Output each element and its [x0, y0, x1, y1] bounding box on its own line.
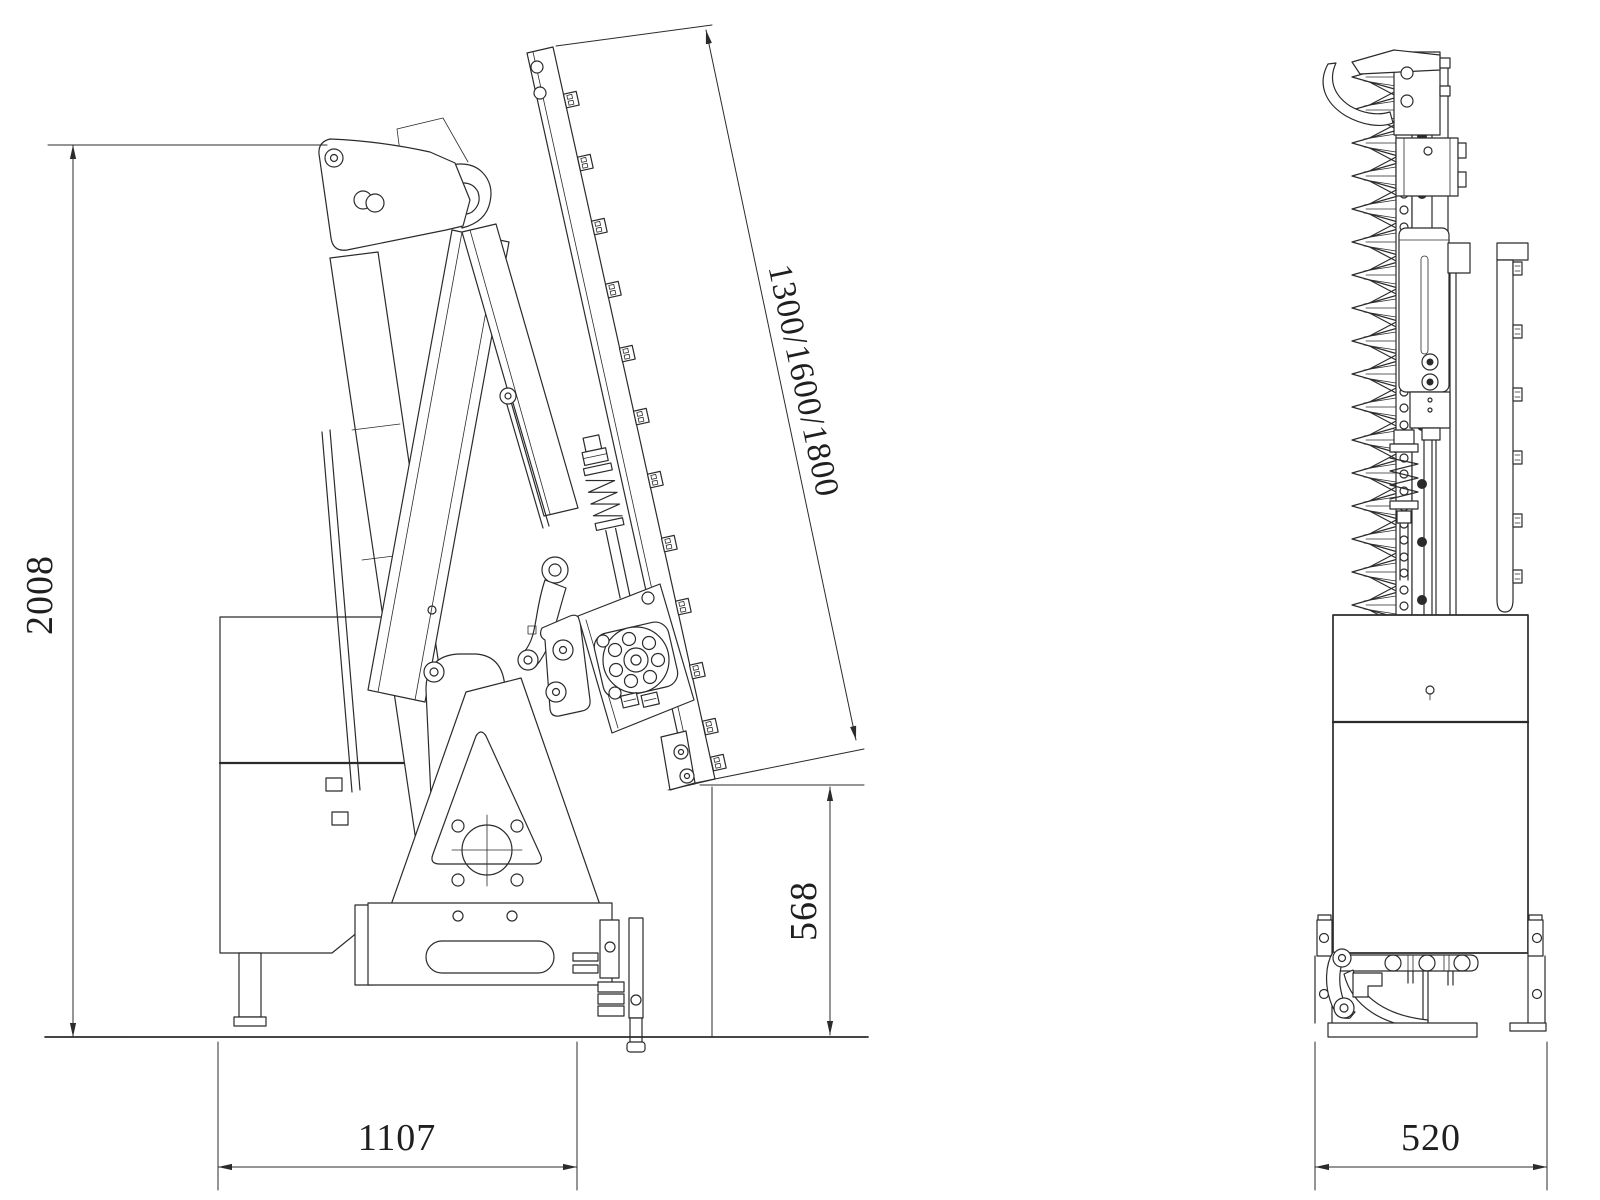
front-width-label: 520: [1401, 1117, 1461, 1159]
front-top-bracket: [1323, 50, 1450, 135]
boom-top-bracket: [319, 118, 491, 250]
sickle-teeth: [1352, 57, 1398, 625]
front-view: [1315, 50, 1546, 1037]
dimension-base-width: 1107: [218, 1042, 577, 1190]
front-body-box: [1333, 615, 1528, 953]
side-view: [220, 47, 726, 1052]
base-width-label: 1107: [358, 1117, 437, 1159]
tip-height-label: 568: [783, 881, 825, 941]
dimension-front-width: 520: [1315, 1042, 1547, 1190]
front-bar-strip: [1497, 243, 1528, 612]
overall-height-label: 2008: [19, 555, 61, 635]
left-stand-leg: [234, 953, 266, 1026]
cad-drawing-canvas: 2008 1107 568 1300/1600/1800 520: [0, 0, 1600, 1200]
dimension-tip-height: 568: [700, 785, 864, 1037]
cutter-bar-length-label: 1300/1600/1800: [761, 261, 846, 500]
